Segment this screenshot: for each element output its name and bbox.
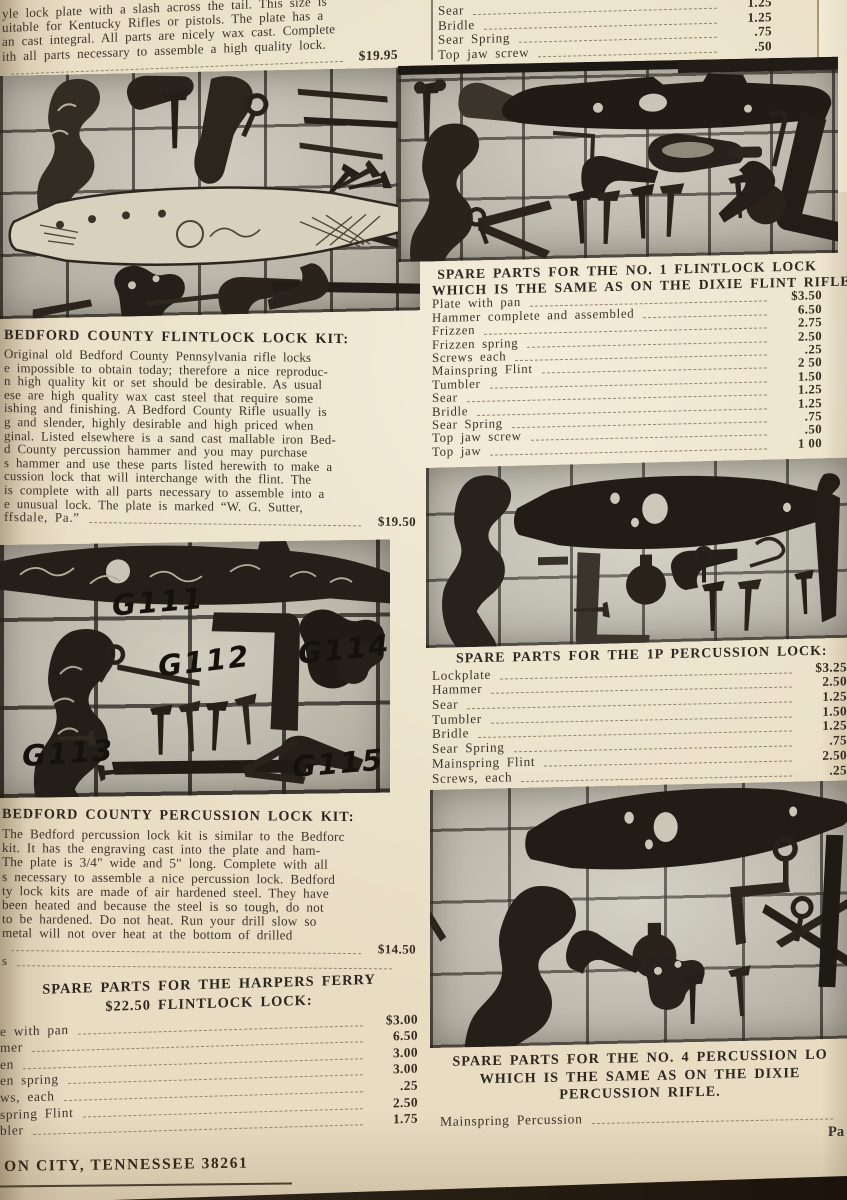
item-label: Mainspring Percussion bbox=[440, 1111, 583, 1130]
item-price: $19.95 bbox=[350, 47, 398, 65]
page-number-fragment: Pa bbox=[828, 1124, 844, 1141]
price-rows: Lockplate $3.25 Hammer 2.50 Sear 1.25 Tu… bbox=[432, 660, 847, 786]
photo-label-g113: G113 bbox=[21, 733, 115, 773]
dotted-leader bbox=[33, 1124, 363, 1135]
price-row: Mainspring Percussion bbox=[440, 1107, 840, 1130]
photo-bedford-parts-grid: G111 G112 G113 G114 G115 bbox=[0, 540, 390, 798]
item-label: ffsdale, Pa.” bbox=[4, 509, 80, 526]
bedford-percussion-heading: BEDFORD COUNTY PERCUSSION LOCK KIT: bbox=[2, 806, 416, 827]
intro-paragraph: yle lock plate with a slash across the t… bbox=[2, 0, 398, 78]
item-price: 2.50 bbox=[370, 1094, 418, 1111]
item-label: en bbox=[0, 1056, 14, 1072]
dotted-leader bbox=[592, 1118, 833, 1124]
text-line: metal will not over heat at the bottom o… bbox=[2, 925, 416, 943]
dotted-leader bbox=[643, 314, 767, 318]
column-divider-rule bbox=[431, 0, 433, 60]
no4-percussion-section: SPARE PARTS FOR THE NO. 4 PERCUSSION LO … bbox=[440, 1046, 840, 1130]
item-price: 6.50 bbox=[370, 1028, 418, 1045]
item-label: Screws, each bbox=[432, 769, 512, 787]
item-price: $14.50 bbox=[368, 941, 416, 957]
item-price: .25 bbox=[799, 762, 847, 779]
page-number-text: Pa bbox=[828, 1124, 844, 1140]
item-label: e with pan bbox=[0, 1022, 69, 1040]
photo-flintlock-parts-grid bbox=[0, 67, 420, 319]
photo-no4-percussion-parts-grid bbox=[430, 781, 847, 1048]
harpers-ferry-section: SPARE PARTS FOR THE HARPERS FERRY $22.50… bbox=[0, 971, 418, 1140]
price-rows: Sear 1.25 Bridle 1.25 Sear Spring .75 To… bbox=[438, 0, 772, 63]
price-rows: Plate with pan $3.50 Hammer complete and… bbox=[432, 290, 822, 460]
item-price: .50 bbox=[724, 38, 772, 55]
dotted-leader bbox=[538, 52, 717, 58]
item-label: en spring bbox=[0, 1072, 59, 1090]
item-label: ws, each bbox=[0, 1088, 55, 1106]
item-label: s bbox=[2, 953, 8, 969]
dotted-leader bbox=[89, 522, 361, 526]
photo-1p-percussion-parts-illustration bbox=[426, 458, 847, 648]
photo-1p-percussion-parts-grid bbox=[426, 458, 847, 648]
top-right-price-list: Sear 1.25 Bridle 1.25 Sear Spring .75 To… bbox=[438, 0, 772, 63]
item-price: $3.00 bbox=[370, 1011, 418, 1028]
item-label: mer bbox=[0, 1040, 23, 1057]
item-price: 1.75 bbox=[370, 1111, 418, 1128]
bedford-flintlock-heading: BEDFORD COUNTY FLINTLOCK LOCK KIT: bbox=[4, 327, 416, 349]
item-label: bler bbox=[0, 1122, 24, 1139]
photo-no4-percussion-parts-illustration bbox=[430, 781, 847, 1048]
footer-address: ON CITY, TENNESSEE 38261 bbox=[4, 1155, 249, 1176]
bedford-percussion-lines: The Bedford percussion lock kit is simil… bbox=[2, 826, 416, 943]
photo-no1-flintlock-parts-illustration bbox=[398, 57, 838, 262]
bedford-flintlock-section: BEDFORD COUNTY FLINTLOCK LOCK KIT: Origi… bbox=[4, 327, 416, 530]
item-price: 1 00 bbox=[774, 436, 822, 452]
dotted-leader bbox=[521, 775, 792, 782]
item-price: 3.00 bbox=[370, 1061, 418, 1078]
dotted-leader bbox=[490, 448, 767, 455]
dotted-leader bbox=[17, 965, 392, 969]
catalog-page-scan: yle lock plate with a slash across the t… bbox=[0, 0, 847, 1200]
photo-flintlock-parts-illustration bbox=[0, 67, 420, 319]
dotted-leader bbox=[11, 950, 361, 954]
price-rows: e with pan $3.00 mer 6.50 en 3.00 en spr… bbox=[0, 1011, 418, 1140]
item-label: Top jaw screw bbox=[438, 45, 529, 63]
bedford-flintlock-lines: Original old Bedford County Pennsylvania… bbox=[4, 347, 416, 515]
item-price: 3.00 bbox=[370, 1044, 418, 1061]
stray-leader-row: s bbox=[2, 954, 416, 972]
price-rows: Mainspring Percussion bbox=[440, 1107, 840, 1130]
no1-flintlock-section: SPARE PARTS FOR THE NO. 1 FLINTLOCK LOCK… bbox=[432, 258, 822, 460]
footer-address-text: ON CITY, TENNESSEE 38261 bbox=[4, 1155, 248, 1175]
footer-rule bbox=[0, 1182, 292, 1187]
p1-percussion-section: SPARE PARTS FOR THE 1P PERCUSSION LOCK: … bbox=[432, 643, 847, 786]
item-label: Top jaw bbox=[432, 444, 481, 460]
item-price: $19.50 bbox=[368, 513, 416, 530]
bedford-percussion-section: BEDFORD COUNTY PERCUSSION LOCK KIT: The … bbox=[2, 806, 416, 972]
item-label: spring Flint bbox=[0, 1104, 74, 1122]
photo-no1-flintlock-parts-grid bbox=[398, 57, 838, 262]
item-price: .25 bbox=[370, 1078, 418, 1095]
